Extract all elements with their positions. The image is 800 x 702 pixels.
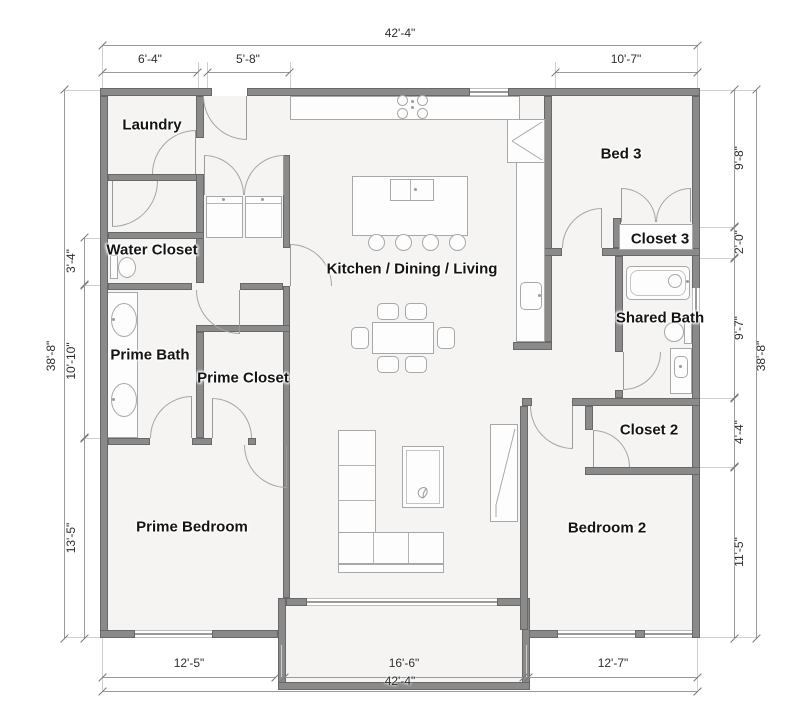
window xyxy=(470,88,508,96)
fridge-door-lines xyxy=(508,120,544,162)
room-label-kitchen-dining-living: Kitchen / Dining / Living xyxy=(327,261,498,278)
dim-right-s4: 4'-4" xyxy=(732,400,746,464)
bar-stool xyxy=(395,234,412,251)
dimension-line xyxy=(102,72,198,73)
faucet-dot xyxy=(112,398,115,401)
room-label-prime-bath: Prime Bath xyxy=(110,347,189,364)
dim-left-s1: 3'-4" xyxy=(64,229,78,293)
toilet-symbol xyxy=(118,257,136,278)
dim-bottom-mid: 16'-6" xyxy=(389,656,420,670)
dining-chair xyxy=(405,356,427,373)
toilet-tank-symbol xyxy=(110,255,118,279)
wall xyxy=(240,283,283,290)
extension-line xyxy=(102,45,103,88)
room-label-bed3: Bed 3 xyxy=(601,146,642,163)
extension-line xyxy=(700,90,756,91)
wall xyxy=(100,88,212,96)
wall xyxy=(497,598,522,606)
wall xyxy=(585,467,700,475)
room-label-laundry: Laundry xyxy=(122,117,181,134)
extension-line xyxy=(281,645,282,677)
wall xyxy=(520,406,528,630)
dryer-knob xyxy=(261,198,264,201)
room-label-bedroom2: Bedroom 2 xyxy=(568,520,646,537)
cooktop-symbol xyxy=(397,108,408,119)
cooktop-symbol xyxy=(417,95,428,106)
extension-line xyxy=(700,227,734,228)
faucet-dot xyxy=(112,318,115,321)
room-label-shared-bath: Shared Bath xyxy=(616,310,704,327)
dimension-line xyxy=(84,438,85,638)
wall xyxy=(544,96,552,342)
dimension-line xyxy=(84,285,85,438)
room-label-closet3: Closet 3 xyxy=(631,231,689,248)
extension-line xyxy=(64,90,100,91)
extension-line xyxy=(84,438,100,439)
wall xyxy=(615,256,623,352)
bar-stool xyxy=(368,234,385,251)
floor-plan-canvas: Laundry Water Closet Prime Bath Prime Cl… xyxy=(0,0,800,702)
dining-chair xyxy=(437,327,455,349)
sofa xyxy=(338,532,444,564)
dim-bottom-right: 12'-7" xyxy=(598,656,629,670)
sofa-base xyxy=(338,564,444,573)
dimension-line xyxy=(102,45,698,46)
extension-line xyxy=(555,62,556,88)
cooktop-knob xyxy=(411,100,414,103)
dining-chair xyxy=(405,303,427,320)
faucet-dot xyxy=(686,280,689,283)
wall xyxy=(108,174,204,181)
dim-left-s2: 10'-10" xyxy=(64,329,78,393)
dining-table xyxy=(372,322,434,354)
room-label-prime-bedroom: Prime Bedroom xyxy=(136,519,248,536)
wall xyxy=(283,286,290,598)
washer-knob xyxy=(222,198,225,201)
sofa-chaise xyxy=(338,430,376,534)
wall xyxy=(544,248,562,256)
dimension-line xyxy=(528,677,698,678)
wall xyxy=(286,598,307,606)
dim-right-s5: 11'-5" xyxy=(732,520,746,584)
dim-top-right: 10'-7" xyxy=(611,52,642,66)
dim-bottom-total: 42'-4" xyxy=(385,674,416,688)
dim-top-left: 6'-4" xyxy=(138,52,162,66)
room-label-water-closet: Water Closet xyxy=(106,242,197,259)
extension-line xyxy=(207,62,208,88)
window xyxy=(135,630,212,638)
wall xyxy=(508,88,700,96)
dryer-panel-line xyxy=(246,203,281,204)
wall xyxy=(192,438,212,445)
dining-chair xyxy=(351,327,369,349)
dimension-line xyxy=(102,677,276,678)
dim-left-total: 38'-8" xyxy=(44,324,58,388)
wall xyxy=(522,398,532,406)
wall xyxy=(196,174,204,283)
patio-floor xyxy=(286,606,522,682)
dimension-line xyxy=(102,691,698,692)
room-label-closet2: Closet 2 xyxy=(620,422,678,439)
dim-top-mid: 5'-8" xyxy=(236,52,260,66)
dim-right-s1: 9'-8" xyxy=(732,126,746,190)
extension-line xyxy=(290,62,291,88)
bar-stool xyxy=(422,234,439,251)
faucet-dot xyxy=(538,294,541,297)
wall xyxy=(283,155,290,248)
plant-symbol xyxy=(414,484,432,502)
wall xyxy=(108,438,150,445)
tv-cabinet-line xyxy=(491,425,517,521)
sink-divider xyxy=(410,180,411,200)
dimension-line xyxy=(207,72,290,73)
extension-line xyxy=(697,45,698,88)
sofa-cushion-line xyxy=(408,533,409,563)
dim-top-total: 42'-4" xyxy=(385,26,416,40)
sofa-cushion-line xyxy=(339,500,375,501)
dimension-line xyxy=(555,72,698,73)
extension-line xyxy=(84,238,100,239)
extension-line xyxy=(700,258,734,259)
faucet-dot xyxy=(414,188,417,191)
wall xyxy=(635,630,645,638)
wall xyxy=(196,325,290,332)
wall xyxy=(212,630,278,638)
bathtub-drain xyxy=(668,274,682,288)
kitchen-tall-counter xyxy=(516,162,545,342)
wall xyxy=(247,88,470,96)
sofa-cushion-line xyxy=(373,533,374,563)
wall xyxy=(513,342,552,350)
wall xyxy=(108,283,192,290)
wall xyxy=(585,406,593,430)
bar-stool xyxy=(449,234,466,251)
extension-line xyxy=(700,398,734,399)
wall xyxy=(100,96,108,638)
sofa-cushion-line xyxy=(339,465,375,466)
wall xyxy=(692,96,700,638)
washer-panel-line xyxy=(207,203,242,204)
sliding-glass-door xyxy=(307,598,497,606)
dining-chair xyxy=(377,303,399,320)
extension-line xyxy=(700,467,734,468)
room-label-prime-closet: Prime Closet xyxy=(197,370,289,387)
dining-chair xyxy=(377,356,399,373)
extension-line xyxy=(198,62,199,88)
cooktop-symbol xyxy=(417,108,428,119)
dimension-line xyxy=(84,238,85,285)
island-sink-symbol xyxy=(390,179,434,201)
extension-line xyxy=(102,638,103,690)
wall xyxy=(572,398,700,406)
wall xyxy=(248,438,256,445)
tv-cabinet xyxy=(490,424,518,522)
wall xyxy=(100,630,135,638)
dim-bottom-left: 12'-5" xyxy=(174,656,205,670)
extension-line xyxy=(697,638,698,690)
window xyxy=(558,630,635,638)
wall xyxy=(108,232,204,239)
dim-right-s3: 9'-7" xyxy=(732,296,746,360)
extension-line xyxy=(84,285,100,286)
extension-line xyxy=(700,637,756,638)
window xyxy=(645,630,692,638)
wall xyxy=(615,390,623,398)
extension-line xyxy=(64,637,100,638)
faucet-dot xyxy=(679,365,682,368)
dim-left-s3: 13'-5" xyxy=(64,506,78,570)
cooktop-symbol xyxy=(397,95,408,106)
fridge-symbol xyxy=(507,119,545,163)
cooktop-knob xyxy=(411,106,414,109)
dim-right-total: 38'-8" xyxy=(754,324,768,388)
